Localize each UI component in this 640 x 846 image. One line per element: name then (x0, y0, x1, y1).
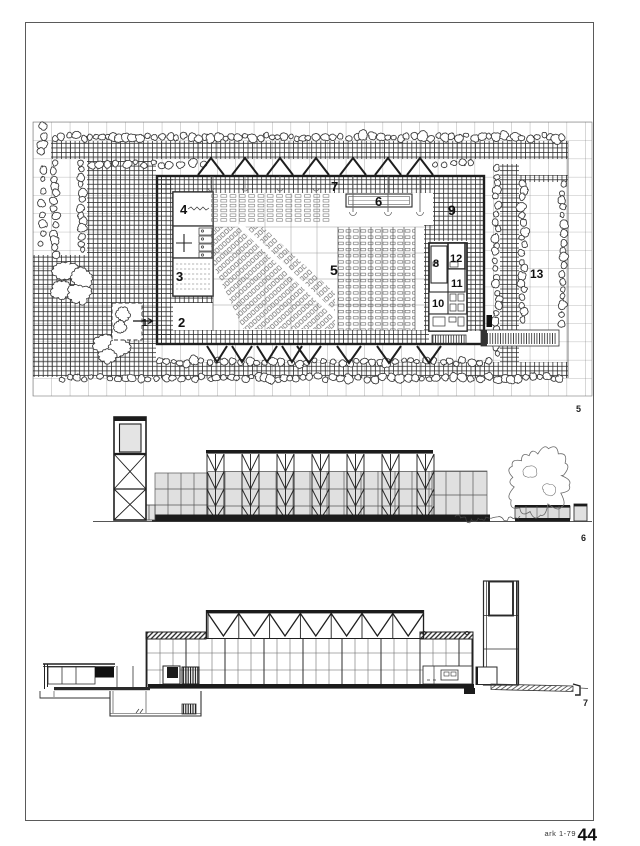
svg-text:7: 7 (583, 698, 588, 708)
svg-text:6: 6 (375, 194, 382, 209)
svg-text:12: 12 (450, 253, 462, 265)
svg-text:13: 13 (530, 267, 544, 281)
svg-text:4: 4 (180, 202, 188, 217)
svg-text:11: 11 (451, 278, 463, 290)
svg-text:5: 5 (576, 404, 581, 414)
svg-text:1: 1 (142, 318, 148, 329)
svg-text:7: 7 (331, 179, 338, 194)
svg-text:8: 8 (433, 258, 439, 270)
svg-text:9: 9 (448, 202, 456, 218)
svg-text:6: 6 (581, 533, 586, 543)
svg-text:44: 44 (578, 825, 598, 845)
svg-text:3: 3 (176, 269, 183, 284)
svg-text:ark 1-79: ark 1-79 (544, 829, 576, 838)
svg-text:5: 5 (330, 262, 338, 278)
svg-text:2: 2 (178, 315, 185, 330)
svg-text:10: 10 (432, 298, 444, 310)
